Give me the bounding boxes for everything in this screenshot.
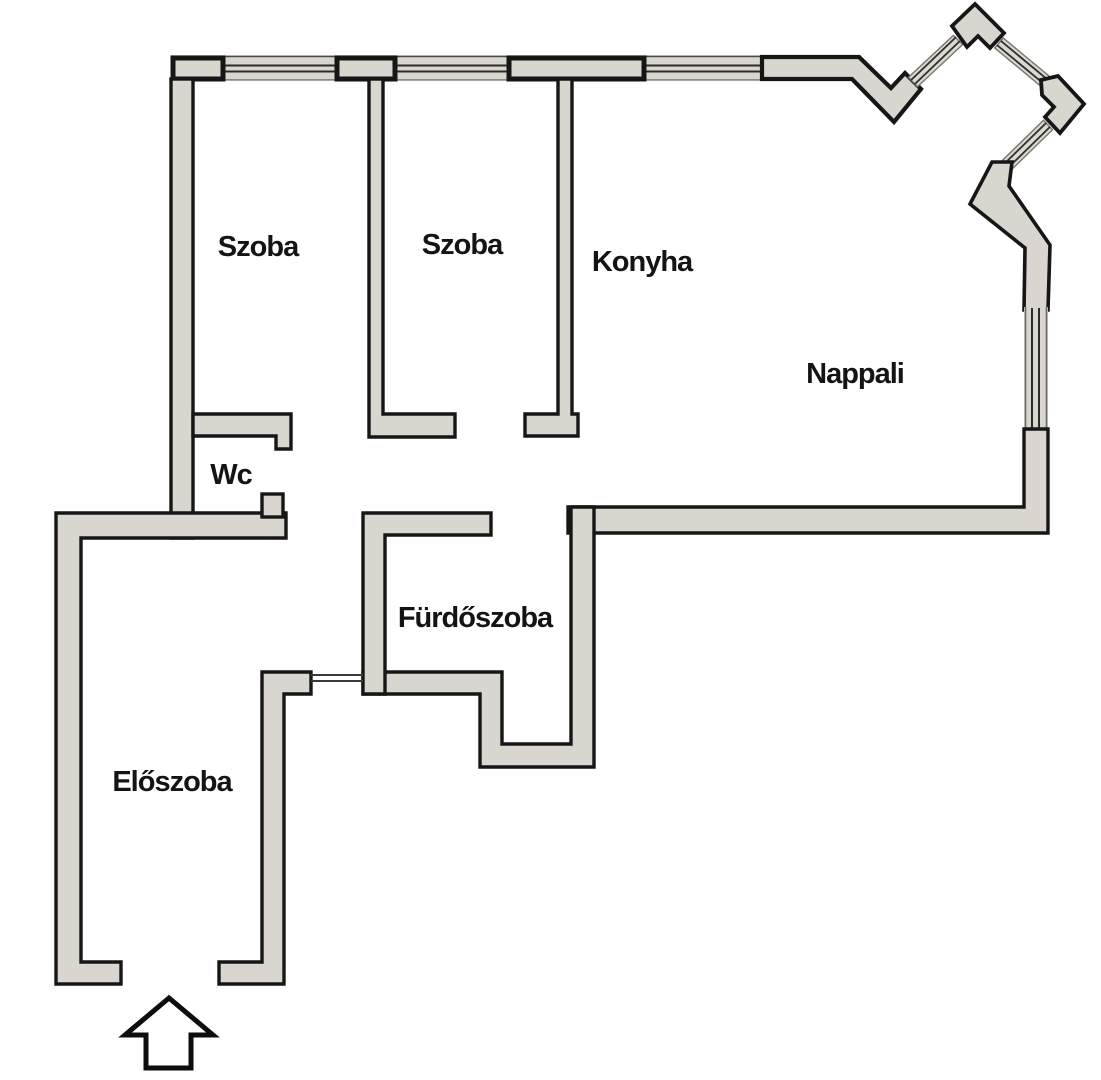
svg-text:Szoba: Szoba — [218, 231, 300, 263]
svg-text:Fürdőszoba: Fürdőszoba — [398, 602, 554, 634]
svg-text:Előszoba: Előszoba — [112, 766, 233, 798]
svg-text:Szoba: Szoba — [422, 229, 504, 261]
svg-text:Konyha: Konyha — [592, 246, 694, 278]
svg-text:Nappali: Nappali — [806, 358, 904, 390]
svg-text:Wc: Wc — [210, 459, 252, 491]
